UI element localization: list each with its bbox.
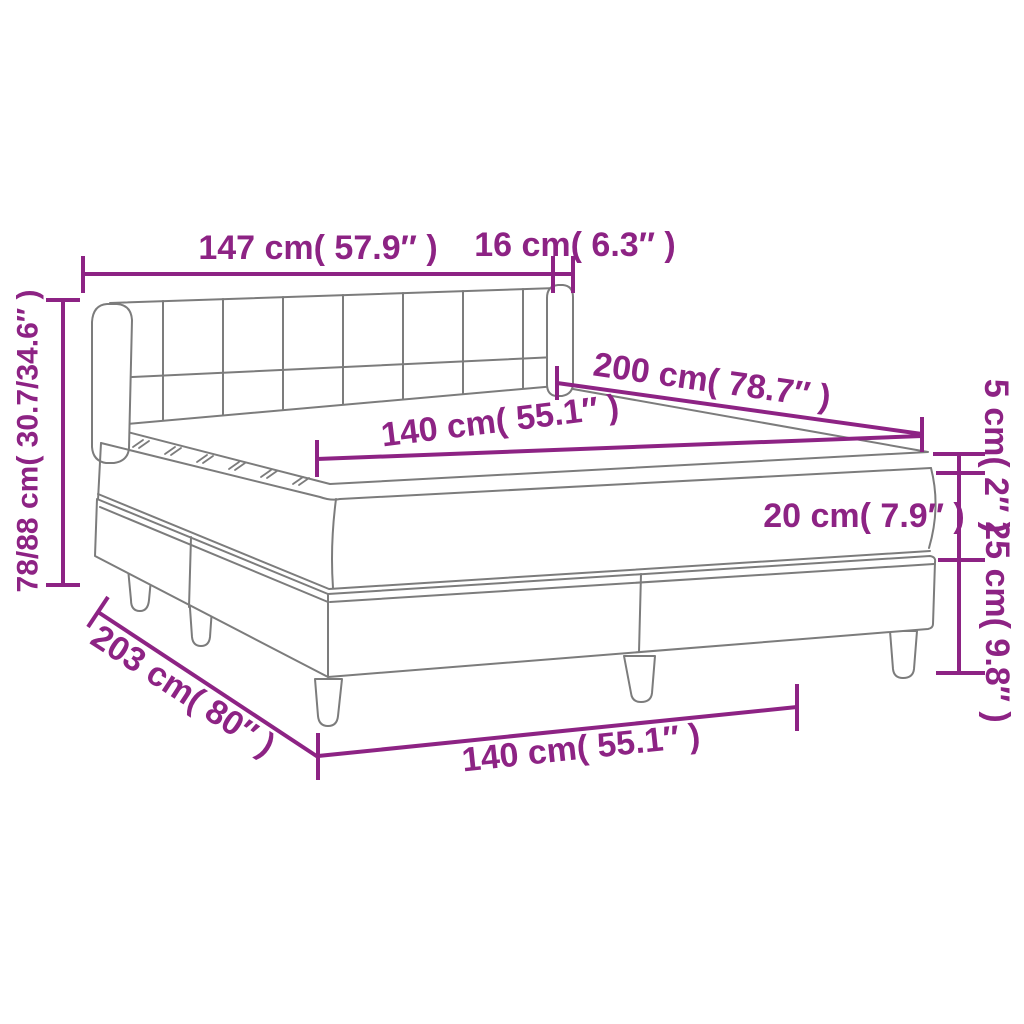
dimension-base-width: 140 cm( 55.1″ ) [318, 684, 797, 780]
mattress-foot-left-corner [332, 499, 336, 588]
label-headboard-width: 147 cm( 57.9″ ) [198, 229, 437, 267]
headboard-left-wing [92, 304, 132, 463]
bed-diagram-canvas: 147 cm( 57.9″ ) 16 cm( 6.3″ ) 78/88 cm( … [0, 0, 1024, 1024]
label-total-height: 78/88 cm( 30.7/34.6″ ) [12, 290, 45, 593]
label-base-length: 203 cm( 80″ ) [84, 618, 282, 765]
bed-leg [890, 631, 917, 678]
bed-leg [315, 679, 342, 726]
bed-leg [624, 656, 655, 702]
label-headboard-depth: 16 cm( 6.3″ ) [474, 226, 676, 264]
dimension-total-height: 78/88 cm( 30.7/34.6″ ) [12, 290, 81, 593]
label-mattress-height: 20 cm( 7.9″ ) [763, 497, 965, 535]
label-topper-height: 5 cm( 2″ ) [977, 379, 1015, 533]
dimension-lines-left [46, 300, 80, 585]
label-base-height: 25 cm( 9.8″ ) [978, 521, 1016, 723]
label-base-width: 140 cm( 55.1″ ) [460, 717, 702, 780]
headboard-right-wing [547, 285, 573, 396]
dimension-headboard-width: 147 cm( 57.9″ ) 16 cm( 6.3″ ) [83, 226, 676, 293]
dimension-diagram: 147 cm( 57.9″ ) 16 cm( 6.3″ ) 78/88 cm( … [0, 0, 1024, 1024]
